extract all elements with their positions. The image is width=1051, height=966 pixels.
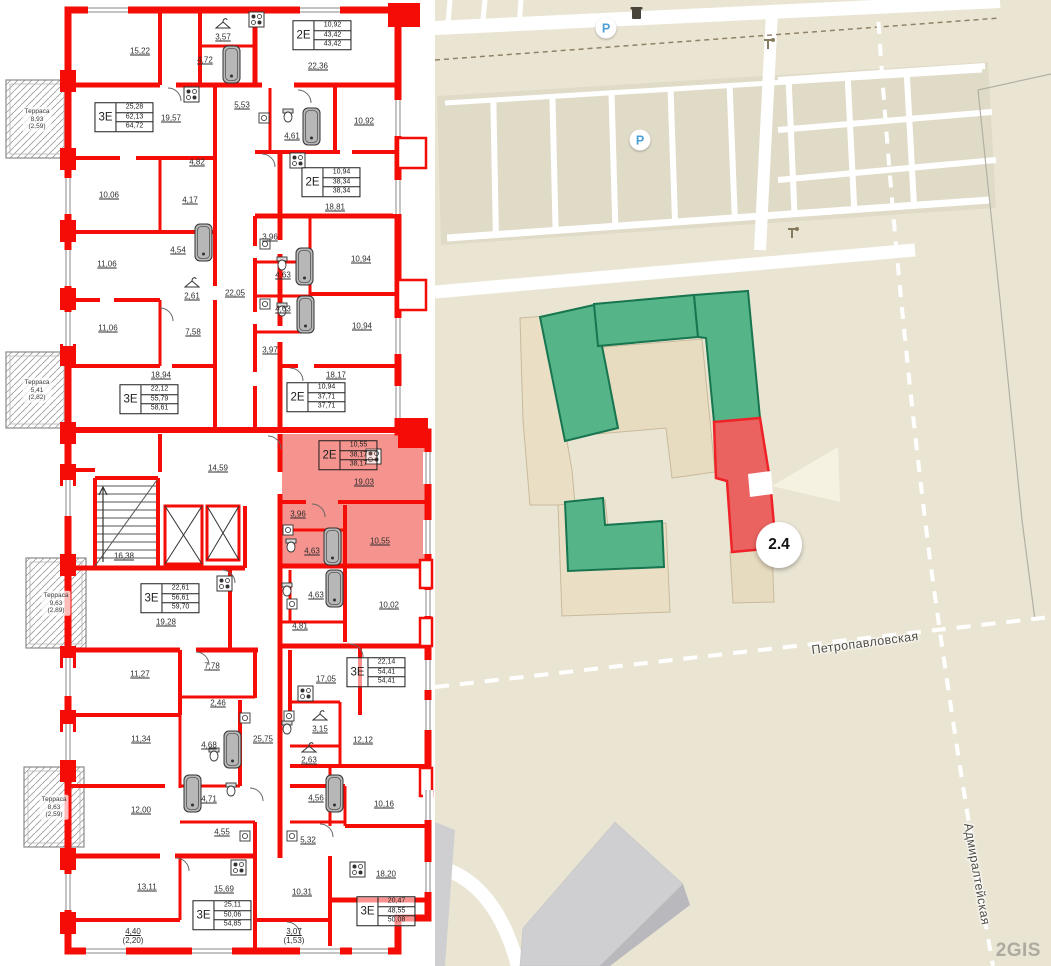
parking-icon[interactable]: P xyxy=(630,130,651,151)
stove-icon xyxy=(290,153,305,168)
wall-pillar xyxy=(60,148,76,170)
sink-icon xyxy=(260,239,270,249)
wall-pillar xyxy=(60,288,76,310)
door-arc xyxy=(176,858,189,871)
window xyxy=(63,658,73,696)
door-arc xyxy=(250,788,263,801)
hanger-icon xyxy=(216,19,230,28)
stove-icon xyxy=(366,449,381,464)
window xyxy=(423,590,433,616)
window-bay xyxy=(398,280,426,310)
window xyxy=(423,790,433,820)
wall-pillar xyxy=(60,912,76,934)
window xyxy=(423,452,433,484)
map-canvas[interactable]: P P 2.4 Петропавловская Адмиралтейская 2… xyxy=(435,0,1051,966)
parking-letter: P xyxy=(636,133,644,147)
stove-icon xyxy=(350,862,365,877)
door-arc xyxy=(196,652,209,665)
window xyxy=(300,5,340,15)
door-arc xyxy=(290,368,303,381)
stove-icon xyxy=(217,576,232,591)
sink-icon xyxy=(260,299,270,309)
window xyxy=(423,700,433,730)
door-arc xyxy=(262,154,275,167)
hanger-icon xyxy=(185,278,199,287)
window xyxy=(393,318,403,354)
window xyxy=(192,946,232,956)
map-drawing xyxy=(435,0,1051,966)
parking-icon[interactable]: P xyxy=(596,18,617,39)
floor-plan-drawing xyxy=(0,0,435,966)
parking-letter: P xyxy=(602,21,610,35)
sink-icon xyxy=(287,599,297,609)
window xyxy=(63,250,73,286)
window xyxy=(63,312,73,346)
terrace-area xyxy=(6,80,68,158)
sink-icon xyxy=(240,713,250,723)
wall-pillar xyxy=(60,344,76,366)
apartment-window-marker xyxy=(748,471,773,497)
wall-pillar xyxy=(60,848,76,870)
sink-icon xyxy=(259,113,269,123)
terrace-area xyxy=(6,352,68,428)
terrace-area xyxy=(26,558,86,648)
window xyxy=(423,660,433,690)
floor-plan-panel: 15,223,574,7222,3619,575,534,6110,924,82… xyxy=(0,0,435,966)
window-bay xyxy=(420,560,432,588)
sink-icon xyxy=(287,831,297,841)
door-arc xyxy=(287,922,300,935)
apartment-marker-badge[interactable]: 2.4 xyxy=(756,522,802,568)
stove-icon xyxy=(249,12,264,27)
sink-icon xyxy=(284,711,294,721)
window-bay xyxy=(398,138,426,168)
wall-pillar xyxy=(60,70,76,92)
window xyxy=(423,862,433,892)
window xyxy=(86,946,126,956)
window xyxy=(63,480,73,516)
window xyxy=(423,520,433,554)
window xyxy=(63,874,73,910)
stove-icon xyxy=(184,87,199,102)
window xyxy=(300,946,340,956)
window xyxy=(63,724,73,760)
door-arc xyxy=(168,88,181,101)
stove-icon xyxy=(298,686,313,701)
parking-divider xyxy=(552,96,555,230)
window xyxy=(88,5,128,15)
sink-icon xyxy=(240,831,250,841)
parking-divider xyxy=(611,93,615,226)
window xyxy=(393,180,403,214)
door-arc xyxy=(160,308,173,321)
trash-icon xyxy=(631,7,643,19)
stove-icon xyxy=(231,860,246,875)
window xyxy=(393,386,403,418)
window-bay xyxy=(420,618,432,646)
wall-pillar xyxy=(60,220,76,242)
window xyxy=(352,946,388,956)
wall-pillar xyxy=(60,554,76,576)
hanger-icon xyxy=(313,711,327,720)
wall-pillar xyxy=(60,760,76,782)
wall-pillar xyxy=(388,3,420,27)
window xyxy=(393,100,403,136)
building-section-green[interactable] xyxy=(594,295,698,346)
window xyxy=(63,178,73,214)
parking-divider xyxy=(493,100,496,235)
wall-pillar xyxy=(60,422,76,444)
door-arc xyxy=(298,90,311,103)
sink-icon xyxy=(283,525,293,535)
